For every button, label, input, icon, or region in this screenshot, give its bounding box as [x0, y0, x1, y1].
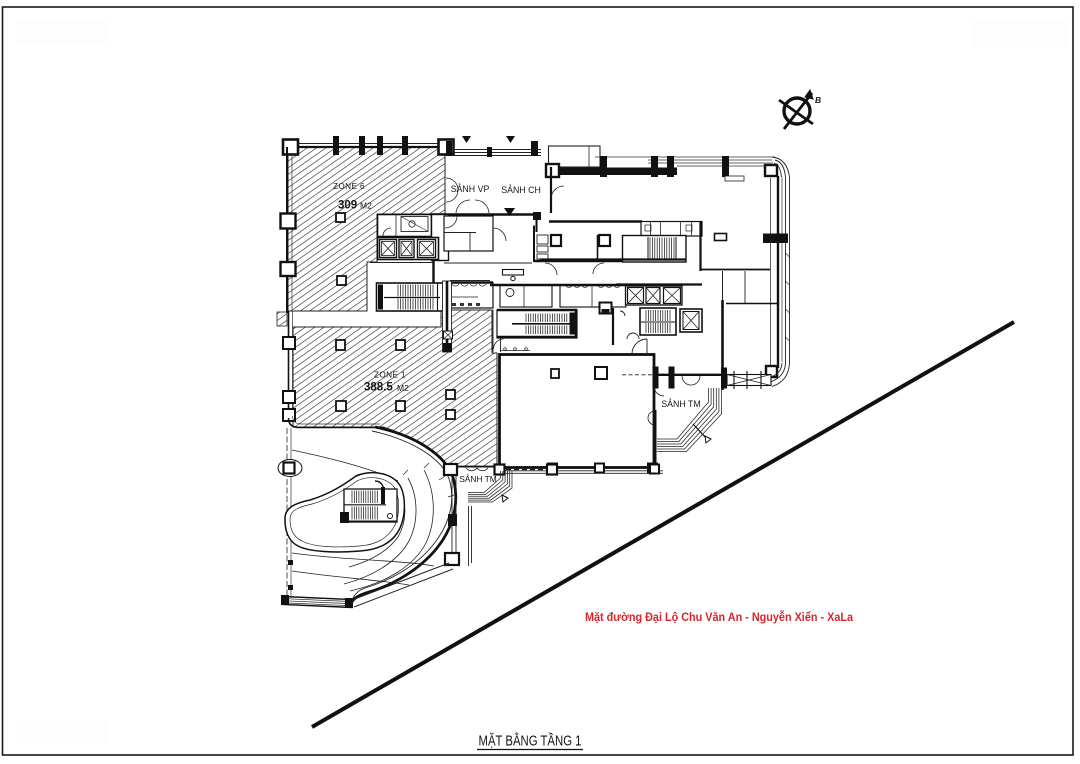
svg-text:SẢNH VP: SẢNH VP — [451, 183, 490, 194]
svg-text:309: 309 — [338, 200, 357, 212]
svg-text:M2: M2 — [397, 383, 409, 393]
svg-text:MẶT BẰNG TẦNG 1: MẶT BẰNG TẦNG 1 — [479, 732, 582, 750]
svg-text:M2: M2 — [360, 201, 372, 211]
svg-text:B: B — [815, 95, 821, 105]
svg-text:ZONE 1: ZONE 1 — [374, 371, 406, 380]
svg-text:Mặt đường Đại Lộ Chu Văn An -: Mặt đường Đại Lộ Chu Văn An - Nguyễn Xiể… — [585, 609, 853, 624]
svg-text:SẢNH TM: SẢNH TM — [459, 473, 497, 484]
svg-text:SẢNH CH: SẢNH CH — [501, 184, 541, 195]
svg-text:SẢNH TM: SẢNH TM — [661, 398, 700, 409]
svg-text:388.5: 388.5 — [364, 382, 393, 394]
svg-text:ZONE 6: ZONE 6 — [333, 182, 365, 191]
